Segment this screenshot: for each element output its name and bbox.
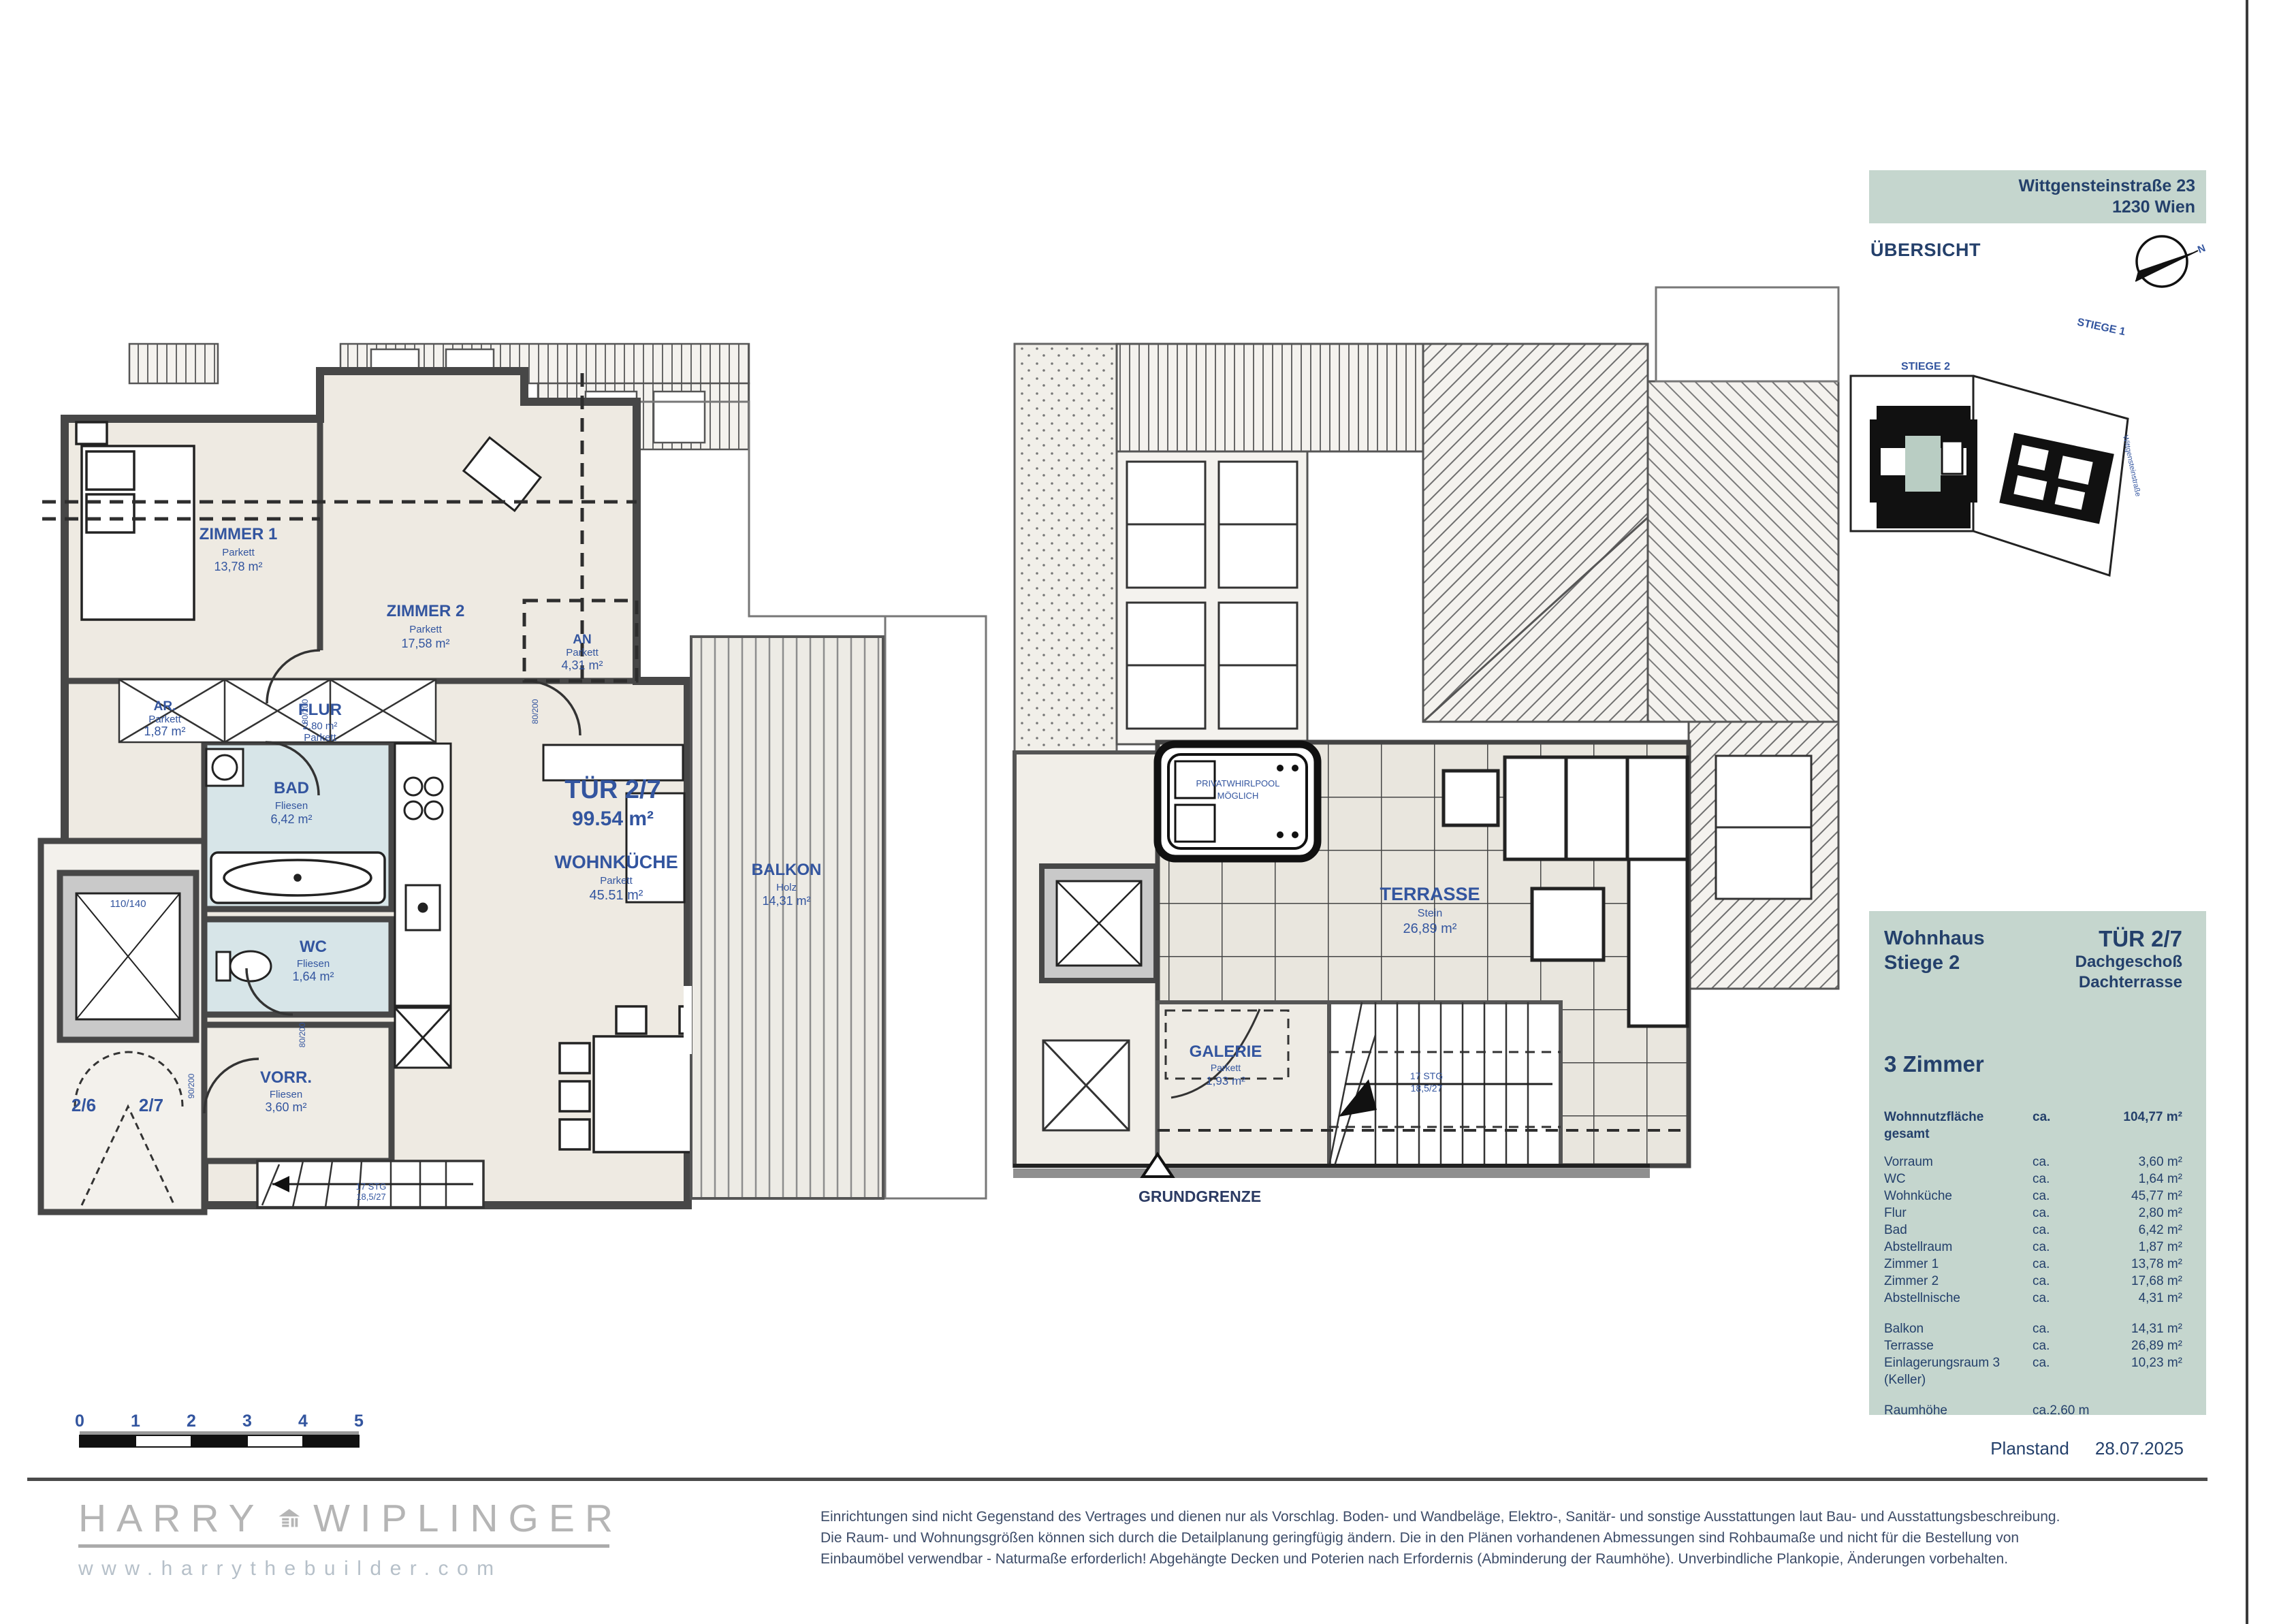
address-line2: 1230 Wien [1869,197,2195,218]
table-row: Flurca.2,80 m² [1884,1205,2182,1222]
washing-machine-icon [206,749,243,786]
scale-bar: 0 1 2 3 4 5 [75,1412,364,1447]
svg-text:Fliesen: Fliesen [275,800,308,812]
svg-text:4: 4 [298,1412,308,1431]
footer-divider [27,1478,2208,1481]
label-grundgrenze: GRUNDGRENZE [1138,1188,1261,1205]
disclaimer-line-1: Einrichtungen sind nicht Gegenstand des … [820,1506,2176,1527]
whirlpool [1158,744,1318,859]
label-door-2-6: 2/6 [71,1095,96,1115]
table-row: Zimmer 2ca.17,68 m² [1884,1273,2182,1290]
svg-text:3: 3 [242,1412,252,1431]
disclaimer-line-3: Einbaumöbel verwendbar - Naturmaße erfor… [820,1548,2176,1570]
svg-text:2: 2 [187,1412,196,1431]
floor-plan-dachgeschoss: ZIMMER 1 Parkett 13,78 m² ZIMMER 2 Parke… [41,344,986,1212]
label-whirlpool: PRIVATWHIRLPOOL [1196,778,1279,789]
site-building-stiege1 [1999,433,2114,524]
svg-text:6,42 m²: 6,42 m² [270,812,312,826]
storage-box [1043,1040,1129,1130]
svg-text:80/200: 80/200 [530,699,540,724]
table-row: Terrasseca.26,89 m² [1884,1337,2182,1354]
svg-text:26,89 m²: 26,89 m² [1403,921,1457,936]
svg-text:Parkett: Parkett [222,547,255,558]
label-vorr: VORR. [260,1068,312,1087]
svg-text:18,5/27: 18,5/27 [1411,1083,1443,1094]
table-row: Badca.6,42 m² [1884,1222,2182,1239]
svg-text:Fliesen: Fliesen [297,958,330,970]
label-lift-size: 110/140 [110,898,146,910]
room-count: 3 Zimmer [1884,1051,2182,1077]
plan-date-value: 28.07.2025 [2095,1438,2184,1459]
table-row: Einlagerungsraum 3 (Keller)ca.10,23 m² [1884,1354,2182,1388]
svg-text:MÖGLICH: MÖGLICH [1217,791,1259,801]
floor-name-1: Dachgeschoß [2075,952,2182,972]
roof-stair [1329,1002,1561,1166]
label-terrasse: TERRASSE [1380,884,1480,904]
disclaimer-text: Einrichtungen sind nicht Gegenstand des … [820,1506,2176,1570]
svg-text:Holz: Holz [776,882,797,893]
svg-text:13,78 m²: 13,78 m² [214,560,262,573]
table-row: Abstellnischeca.4,31 m² [1884,1290,2182,1307]
svg-text:Parkett: Parkett [409,624,442,635]
plan-sheet: ZIMMER 1 Parkett 13,78 m² ZIMMER 2 Parke… [0,0,2279,1624]
svg-text:Fliesen: Fliesen [270,1089,302,1100]
svg-text:Parkett: Parkett [148,714,181,725]
svg-text:Parkett: Parkett [566,647,599,658]
label-zimmer2: ZIMMER 2 [387,602,465,620]
label-an: AN [573,633,591,647]
overview-heading: ÜBERSICHT [1870,240,1981,261]
label-bad: BAD [274,779,309,797]
svg-text:Parkett: Parkett [600,875,633,887]
svg-text:14,31 m²: 14,31 m² [762,894,810,908]
label-street: Wittgensteinstraße [2121,434,2142,497]
unit-number: TÜR 2/7 [2075,926,2182,952]
label-wohnkueche: WOHNKÜCHE [554,852,678,872]
svg-text:80/200: 80/200 [298,1022,307,1047]
sheet-border [2246,0,2248,1624]
logo-url[interactable]: www.harrythebuilder.com [78,1557,623,1580]
label-door-2-7: 2/7 [139,1095,163,1115]
logo-underline [78,1544,609,1548]
table-row-height: Raumhöhe ca.2,60 m [1884,1402,2182,1415]
table-row: Wohnkücheca.45,77 m² [1884,1188,2182,1205]
svg-text:80/200: 80/200 [300,699,310,724]
logo-word-right: WIPLINGER [313,1498,623,1539]
plan-date-label: Planstand [1990,1438,2069,1459]
table-row: WCca.1,64 m² [1884,1171,2182,1188]
svg-text:90/200: 90/200 [187,1073,196,1098]
table-row: Vorraumca.3,60 m² [1884,1153,2182,1171]
company-logo: HARRY WIPLINGER www.harrythebuilder.com [78,1498,623,1580]
plan-date: Planstand28.07.2025 [1869,1438,2184,1459]
svg-text:1,87 m²: 1,87 m² [144,725,185,738]
address-box: Wittgensteinstraße 23 1230 Wien [1869,170,2206,223]
balcony [684,637,883,1198]
svg-text:N: N [2196,242,2207,256]
disclaimer-line-2: Die Raum- und Wohnungsgrößen können sich… [820,1527,2176,1548]
svg-text:3,60 m²: 3,60 m² [265,1100,306,1114]
building-title: Wohnhaus [1884,926,1985,951]
label-stiege1: STIEGE 1 [2076,317,2126,338]
svg-text:5: 5 [354,1412,364,1431]
label-tuer: TÜR 2/7 [564,775,660,804]
site-building-stiege2 [1870,406,1977,528]
label-stiege2: STIEGE 2 [1901,361,1950,372]
table-row: Zimmer 1ca.13,78 m² [1884,1256,2182,1273]
table-row-total: Wohnnutzfläche gesamt ca. 104,77 m² [1884,1109,2182,1143]
label-ar: AR. [154,699,176,714]
svg-text:1,93 m²: 1,93 m² [1206,1074,1245,1087]
svg-text:4,31 m²: 4,31 m² [561,658,603,672]
floor-plan-dachterrasse: TERRASSE Stein 26,89 m² PRIVATWHIRLPOOL … [1013,287,1838,1205]
north-compass-icon: N [2135,236,2208,287]
label-balkon: BALKON [752,861,822,879]
bathtub-icon [211,853,385,903]
logo-word-left: HARRY [78,1498,265,1539]
svg-text:17 STG: 17 STG [356,1181,387,1192]
unit-info-panel: Wohnhaus Stiege 2 TÜR 2/7 Dachgeschoß Da… [1869,911,2206,1415]
house-icon [278,1499,300,1538]
table-row: Balkonca.14,31 m² [1884,1320,2182,1337]
table-row: Abstellraumca.1,87 m² [1884,1239,2182,1256]
svg-text:45.51 m²: 45.51 m² [590,888,643,903]
svg-text:1: 1 [131,1412,140,1431]
elevator-roof [1042,866,1156,981]
kitchen [395,744,451,1068]
svg-text:99.54 m²: 99.54 m² [572,808,654,830]
stair-lobby [41,841,204,1212]
svg-text:1,64 m²: 1,64 m² [292,970,334,983]
svg-text:Parkett: Parkett [304,732,336,744]
label-wc: WC [300,938,327,956]
stair-title: Stiege 2 [1884,951,1985,975]
svg-text:18,5/27: 18,5/27 [356,1192,385,1202]
label-galerie: GALERIE [1190,1042,1262,1061]
svg-text:Stein: Stein [1418,908,1442,919]
bed [76,422,194,620]
svg-text:Parkett: Parkett [1211,1062,1241,1073]
svg-text:17,58 m²: 17,58 m² [401,637,449,650]
label-zimmer1: ZIMMER 1 [200,525,278,543]
svg-text:0: 0 [75,1412,84,1431]
site-plan: STIEGE 2 STIEGE 1 Wittgensteinstraße [1851,317,2142,575]
area-table: Wohnnutzfläche gesamt ca. 104,77 m² Vorr… [1884,1109,2182,1415]
toilet-icon [217,951,271,981]
svg-text:17 STG: 17 STG [1410,1070,1443,1081]
floor-name-2: Dachterrasse [2075,972,2182,993]
address-line1: Wittgensteinstraße 23 [1869,176,2195,197]
